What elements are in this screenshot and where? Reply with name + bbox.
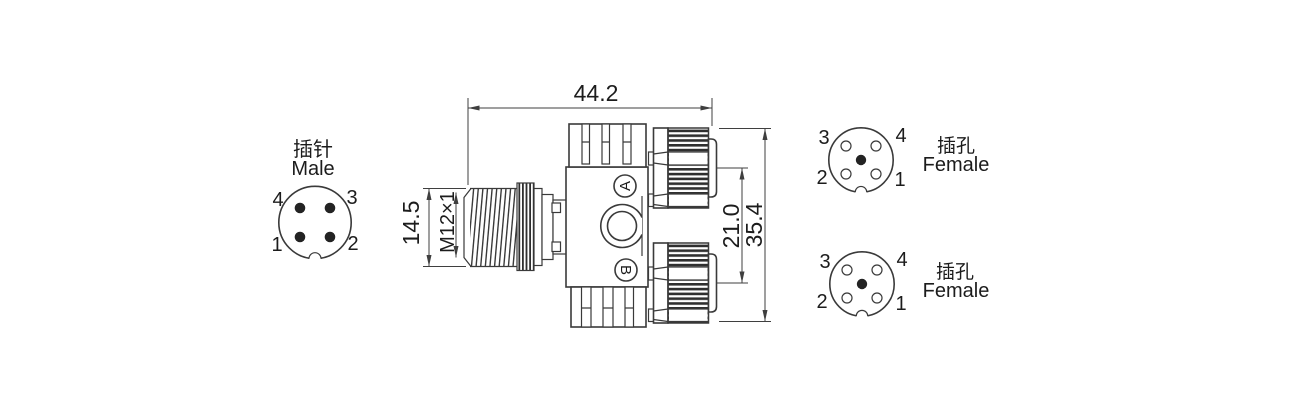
male-face-outline	[279, 186, 351, 258]
male-pin-label-2: 2	[347, 233, 358, 255]
female-bottom-label-en: Female	[923, 280, 990, 302]
female-bottom-pin-label-2: 2	[816, 291, 827, 313]
female-bottom-socket-3	[842, 265, 852, 275]
female-bottom-pin-label-4: 4	[896, 249, 907, 271]
female-bottom-socket-2	[842, 293, 852, 303]
side-view-drawing: A B 44.2 14.5 M12×1	[398, 80, 771, 327]
connector-dimensional-drawing: 插针 Male 4 3 1 2	[0, 0, 1289, 407]
female-top-socket-2	[841, 169, 851, 179]
female-top-socket-3	[841, 141, 851, 151]
female-face-top-diagram: 3 4 2 1 插孔 Female	[816, 125, 989, 198]
female-bottom-center-pin	[857, 279, 867, 289]
port-b-letter: B	[617, 265, 634, 275]
female-port-b-side-view	[649, 243, 717, 323]
male-pin-label-3: 3	[346, 187, 357, 209]
male-pin-2	[325, 232, 336, 243]
female-top-pin-label-3: 3	[818, 127, 829, 149]
female-top-socket-1	[871, 169, 881, 179]
drawing-svg: 插针 Male 4 3 1 2	[0, 0, 1289, 407]
male-pin-1	[295, 232, 306, 243]
female-bottom-pin-label-1: 1	[895, 293, 906, 315]
female-bottom-socket-1	[872, 293, 882, 303]
male-pin-label-4: 4	[272, 189, 283, 211]
mounting-hole	[608, 212, 637, 241]
female-top-pin-label-4: 4	[895, 125, 906, 147]
female-face-bottom-diagram: 3 4 2 1 插孔 Female	[816, 249, 989, 322]
male-thread-tip	[464, 189, 471, 267]
female-top-label-en: Female	[923, 154, 990, 176]
female-top-pin-label-2: 2	[816, 167, 827, 189]
female-top-pin-label-1: 1	[894, 169, 905, 191]
male-plug-side-view	[464, 183, 567, 271]
dim-male-diameter-value: 14.5	[398, 201, 424, 246]
dimension-thread-spec: M12×1	[437, 191, 459, 257]
housing-body	[566, 124, 648, 327]
dim-thread-spec-value: M12×1	[437, 191, 459, 253]
dim-overall-height-value: 35.4	[741, 202, 767, 247]
female-bottom-pin-label-3: 3	[819, 251, 830, 273]
male-knurl-ring	[517, 183, 534, 271]
male-face-diagram: 插针 Male 4 3 1 2	[271, 138, 358, 265]
male-pin-3	[325, 203, 336, 214]
male-pin-label-1: 1	[271, 234, 282, 256]
male-label-en: Male	[291, 158, 334, 180]
female-port-a-side-view	[649, 128, 717, 208]
dim-overall-length-value: 44.2	[574, 80, 619, 106]
port-a-letter: A	[617, 181, 634, 191]
female-top-socket-4	[871, 141, 881, 151]
female-top-center-pin	[856, 155, 866, 165]
male-pin-4	[295, 203, 306, 214]
male-thread	[470, 188, 517, 267]
female-bottom-socket-4	[872, 265, 882, 275]
